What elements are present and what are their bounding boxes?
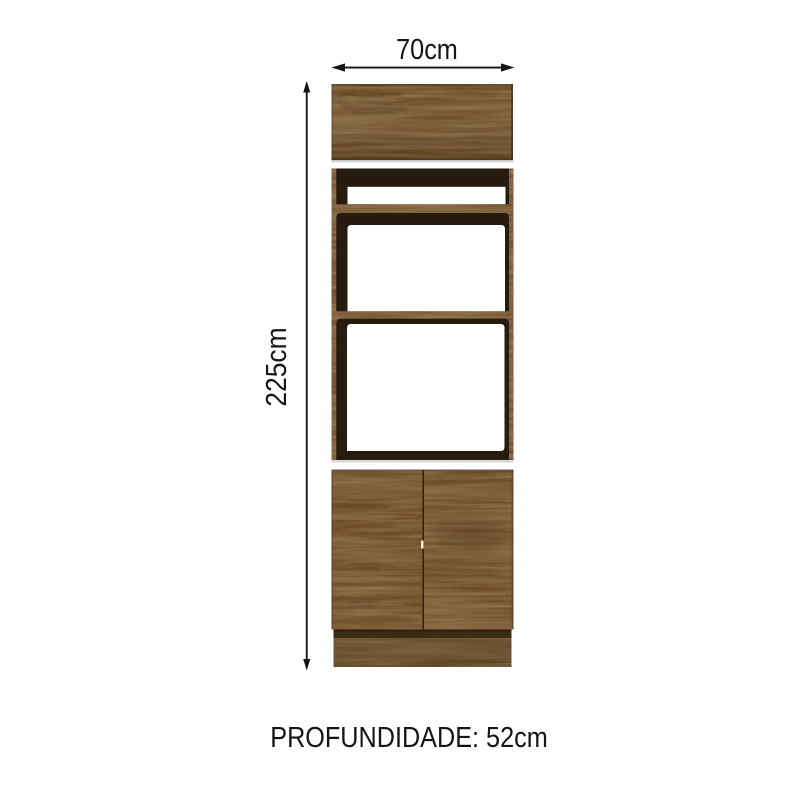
svg-text:PROFUNDIDADE: 52cm: PROFUNDIDADE: 52cm [270, 720, 547, 753]
svg-text:225cm: 225cm [260, 327, 292, 406]
svg-text:70cm: 70cm [396, 32, 458, 65]
